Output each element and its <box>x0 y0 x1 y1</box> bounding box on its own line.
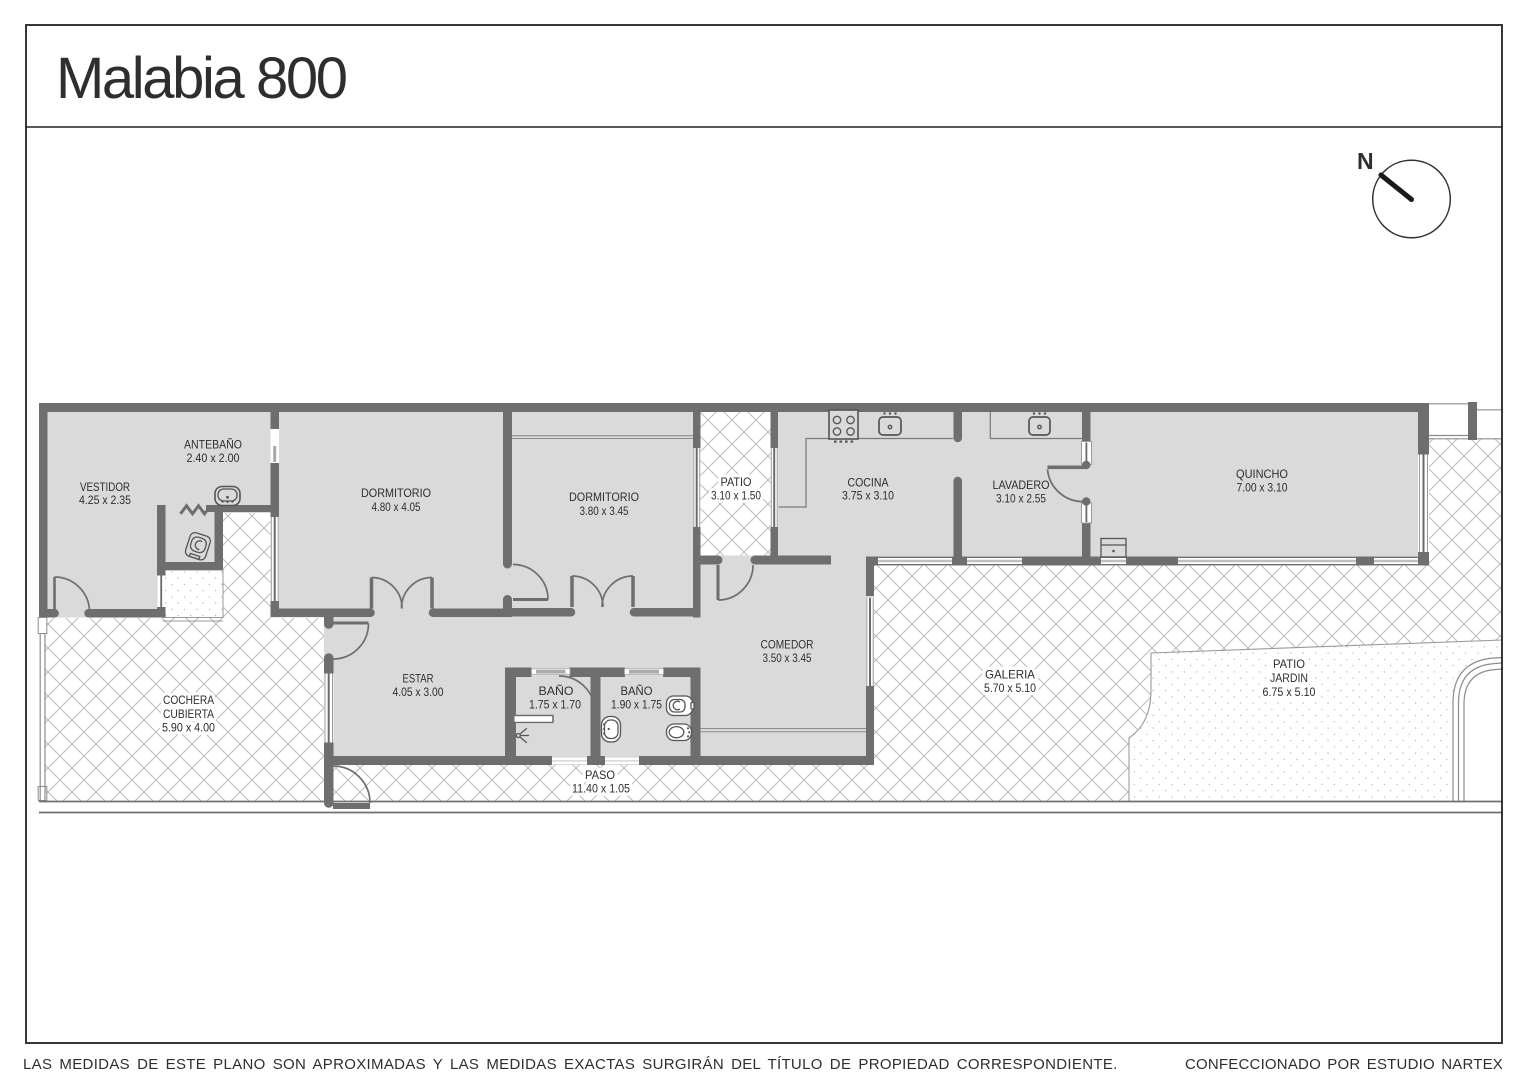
svg-text:3.10 x 2.55: 3.10 x 2.55 <box>996 493 1046 506</box>
svg-text:LAVADERO: LAVADERO <box>993 479 1050 492</box>
svg-text:JARDIN: JARDIN <box>1270 672 1308 685</box>
svg-text:5.70 x 5.10: 5.70 x 5.10 <box>984 682 1036 695</box>
svg-text:LAS MEDIDAS DE ESTE PLANO SON: LAS MEDIDAS DE ESTE PLANO SON APROXIMADA… <box>23 1056 1118 1073</box>
svg-text:QUINCHO: QUINCHO <box>1236 468 1288 481</box>
svg-text:3.75 x 3.10: 3.75 x 3.10 <box>842 490 894 503</box>
svg-text:ESTAR: ESTAR <box>403 673 434 686</box>
svg-text:4.05 x 3.00: 4.05 x 3.00 <box>393 686 444 699</box>
svg-text:6.75 x 5.10: 6.75 x 5.10 <box>1263 686 1316 699</box>
svg-text:4.25 x 2.35: 4.25 x 2.35 <box>79 494 131 507</box>
svg-text:BAÑO: BAÑO <box>539 685 574 698</box>
svg-text:COCHERA: COCHERA <box>163 694 214 707</box>
svg-text:VESTIDOR: VESTIDOR <box>80 481 130 494</box>
svg-text:N: N <box>1357 148 1374 174</box>
svg-text:PASO: PASO <box>585 769 615 782</box>
svg-text:1.90 x 1.75: 1.90 x 1.75 <box>611 699 662 712</box>
svg-text:CONFECCIONADO POR ESTUDIO NART: CONFECCIONADO POR ESTUDIO NARTEX <box>1185 1056 1503 1073</box>
svg-text:11.40 x 1.05: 11.40 x 1.05 <box>572 783 630 796</box>
svg-text:GALERIA: GALERIA <box>985 669 1035 682</box>
svg-text:Malabia 800: Malabia 800 <box>56 46 346 111</box>
svg-text:CUBIERTA: CUBIERTA <box>163 708 214 721</box>
svg-text:DORMITORIO: DORMITORIO <box>361 487 431 500</box>
svg-text:7.00 x 3.10: 7.00 x 3.10 <box>1237 482 1288 495</box>
svg-text:3.10 x 1.50: 3.10 x 1.50 <box>711 490 761 503</box>
svg-text:COMEDOR: COMEDOR <box>761 639 814 652</box>
svg-text:DORMITORIO: DORMITORIO <box>569 491 639 504</box>
svg-text:ANTEBAÑO: ANTEBAÑO <box>184 439 242 452</box>
svg-text:3.50 x 3.45: 3.50 x 3.45 <box>763 652 812 665</box>
svg-text:2.40 x 2.00: 2.40 x 2.00 <box>187 452 240 465</box>
svg-text:1.75 x 1.70: 1.75 x 1.70 <box>529 699 581 712</box>
svg-text:PATIO: PATIO <box>721 476 752 489</box>
svg-text:COCINA: COCINA <box>848 477 889 490</box>
svg-text:PATIO: PATIO <box>1273 658 1305 671</box>
svg-text:3.80 x 3.45: 3.80 x 3.45 <box>580 505 629 518</box>
svg-text:4.80 x 4.05: 4.80 x 4.05 <box>372 501 421 514</box>
svg-text:BAÑO: BAÑO <box>621 685 653 698</box>
svg-text:5.90 x 4.00: 5.90 x 4.00 <box>162 722 215 735</box>
